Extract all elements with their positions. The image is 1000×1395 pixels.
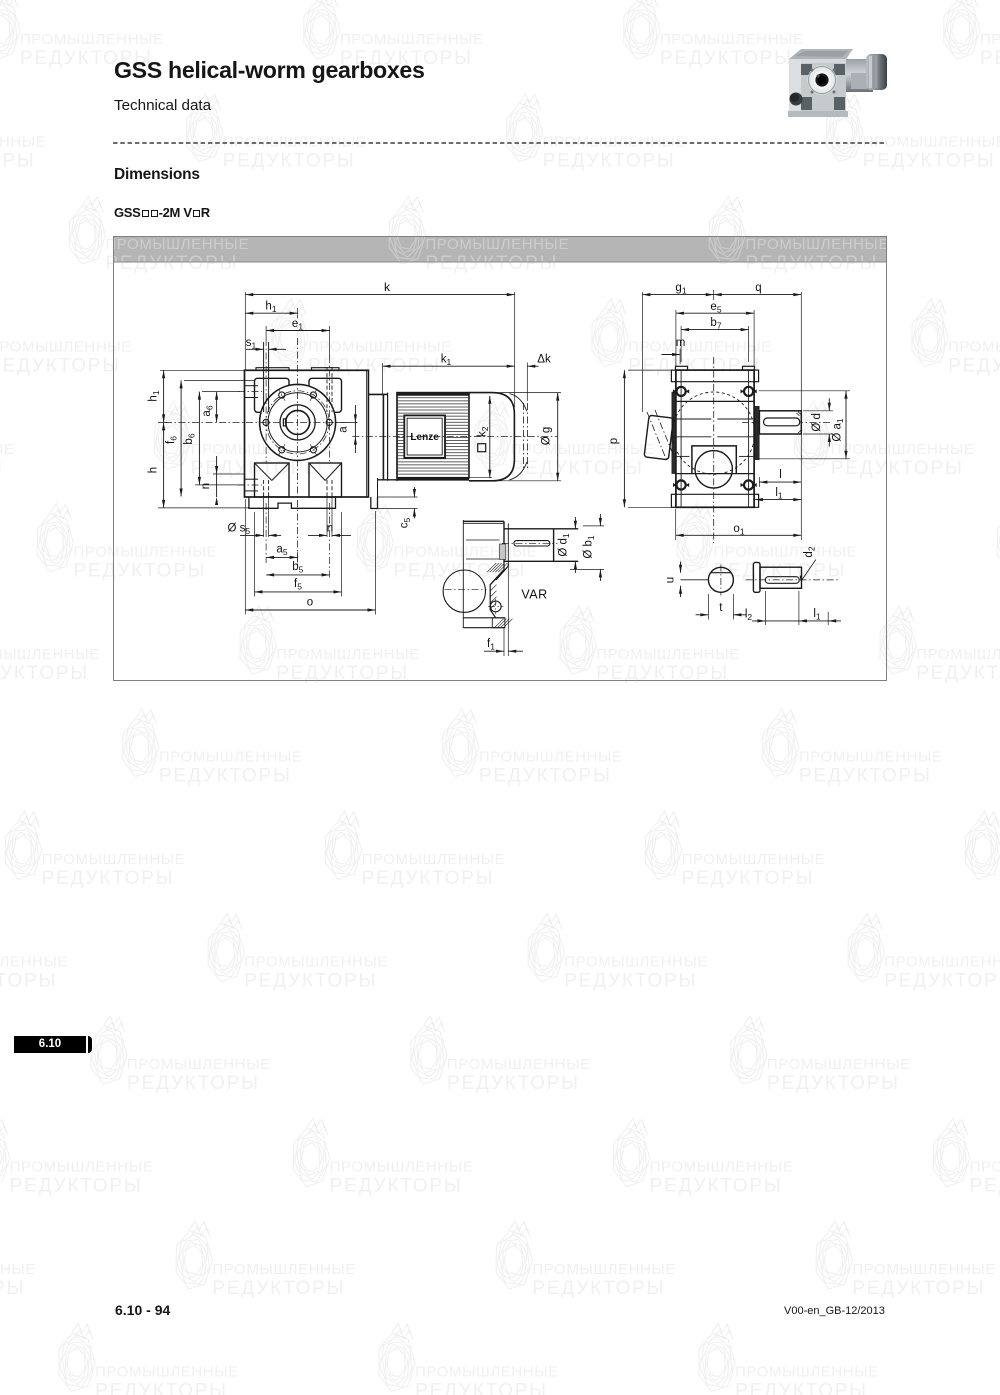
svg-text:Ø s5: Ø s5 <box>228 523 251 537</box>
svg-text:o: o <box>307 597 313 609</box>
svg-text:b6: b6 <box>183 433 197 444</box>
svg-text:k2: k2 <box>476 426 490 437</box>
svg-text:l1: l1 <box>813 608 821 622</box>
svg-text:h: h <box>148 467 160 473</box>
svg-text:Ø d: Ø d <box>811 413 823 432</box>
svg-text:a5: a5 <box>276 544 287 558</box>
svg-text:Δk: Δk <box>537 354 551 366</box>
svg-text:f5: f5 <box>294 578 302 592</box>
svg-text:l1: l1 <box>775 487 783 501</box>
svg-text:l2: l2 <box>745 608 753 622</box>
svg-text:d2: d2 <box>803 546 817 557</box>
svg-text:Ø d1: Ø d1 <box>558 533 572 557</box>
svg-text:o1: o1 <box>733 523 744 537</box>
svg-text:f6: f6 <box>165 436 179 444</box>
svg-text:p: p <box>608 438 620 444</box>
svg-text:s1: s1 <box>246 337 257 351</box>
svg-text:a: a <box>338 426 350 433</box>
svg-text:e1: e1 <box>292 318 303 332</box>
svg-text:g1: g1 <box>675 282 686 296</box>
svg-text:k: k <box>384 280 391 294</box>
svg-text:m: m <box>676 337 686 349</box>
svg-text:b5: b5 <box>292 561 303 575</box>
svg-text:n: n <box>200 483 212 489</box>
svg-text:b7: b7 <box>710 317 721 331</box>
svg-text:q: q <box>755 282 761 294</box>
svg-text:VAR: VAR <box>521 588 547 602</box>
svg-text:a6: a6 <box>201 405 215 416</box>
svg-text:u: u <box>665 577 677 583</box>
svg-text:n: n <box>327 523 333 535</box>
svg-text:Ø b1: Ø b1 <box>583 535 597 559</box>
svg-text:e5: e5 <box>710 301 721 315</box>
svg-text:l: l <box>779 469 782 481</box>
svg-text:Lenze: Lenze <box>410 432 439 443</box>
svg-text:Ø a1: Ø a1 <box>832 418 846 442</box>
svg-text:k1: k1 <box>441 354 452 368</box>
svg-text:h1: h1 <box>148 390 162 401</box>
svg-text:h1: h1 <box>265 301 276 315</box>
svg-text:f1: f1 <box>487 638 495 652</box>
svg-text:t: t <box>719 602 723 614</box>
svg-text:Ø g: Ø g <box>541 427 553 446</box>
svg-text:c5: c5 <box>399 517 413 528</box>
